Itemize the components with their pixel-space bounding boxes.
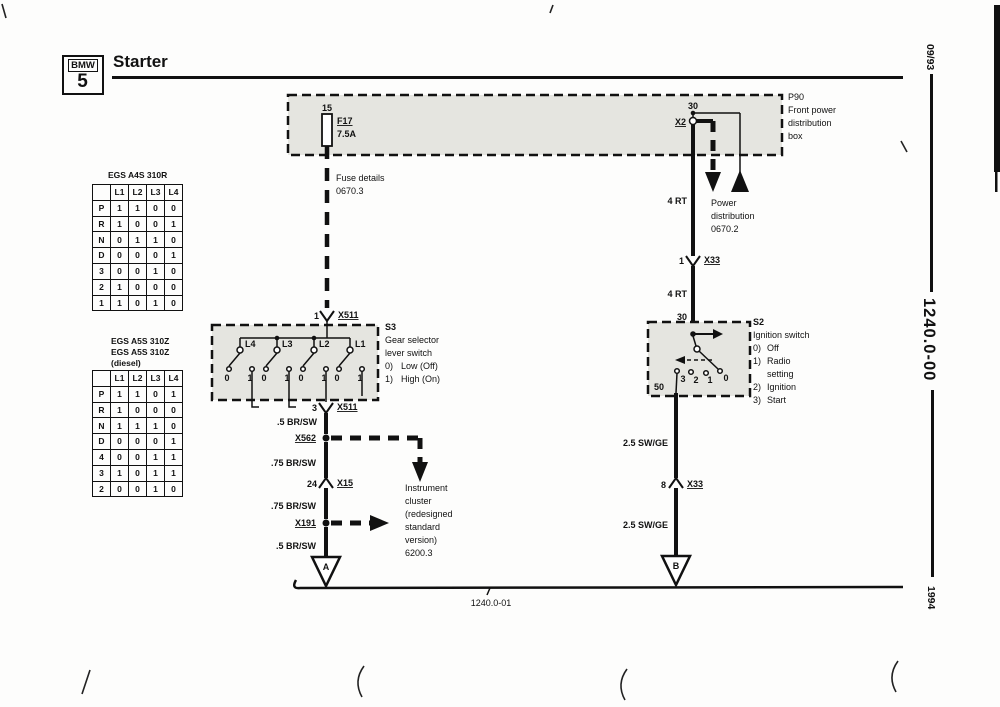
x15-label: X15 (337, 478, 353, 488)
continuation-b-label: B (673, 561, 680, 571)
s3-l1-label: L1 (355, 339, 366, 349)
s3-gear-selector-switch: L4 L3 L2 L1 0 1 0 1 0 1 0 1 S3 Gear sele… (212, 321, 440, 407)
s2-contact-0-label: 0 (723, 373, 728, 383)
footer-line (294, 580, 903, 588)
instrument-branch-dashed (331, 438, 420, 464)
s2-opt2-val: Ignition (767, 382, 796, 392)
p90-desc-line3: distribution (788, 118, 832, 128)
x191-label: X191 (295, 518, 316, 528)
wire-label-05-brsw-upper: .5 BR/SW (277, 417, 318, 427)
instrument-line5: version) (405, 535, 437, 545)
p90-desc-line4: box (788, 131, 803, 141)
fuse-rating-label: 7.5A (337, 129, 357, 139)
wire-label-25-swge-lower: 2.5 SW/GE (623, 520, 668, 530)
instrument-line3: (redesigned (405, 509, 453, 519)
continuation-a-label: A (323, 562, 330, 572)
s2-opt1-val: Radio (767, 356, 791, 366)
fuse-details-line2: 0670.3 (336, 186, 364, 196)
wiring-diagram: 15 F17 7.5A 30 X2 P90 Front power distri… (0, 0, 1000, 707)
s3-opt1-val: High (On) (401, 374, 440, 384)
p90-box (288, 95, 782, 155)
wire-label-4rt-upper: 4 RT (667, 196, 687, 206)
s3-l4-pivot (237, 347, 243, 353)
p90-desc-line2: Front power (788, 105, 836, 115)
s2-opt2-key: 2) (753, 382, 761, 392)
s3-opt0-key: 0) (385, 361, 393, 371)
s2-opt0-key: 0) (753, 343, 761, 353)
x33-lower-label: X33 (687, 479, 703, 489)
x191-branch-arrow-icon (370, 515, 389, 531)
fuse-icon (322, 114, 332, 146)
s2-opt1-val2: setting (767, 369, 794, 379)
svg-text:0: 0 (261, 373, 266, 383)
s3-l2-pivot (311, 347, 317, 353)
s3-l2-label: L2 (319, 339, 330, 349)
x191-junction-dot (323, 520, 330, 527)
fuse-details-line1: Fuse details (336, 173, 385, 183)
wire-label-75-brsw-lower: .75 BR/SW (271, 501, 317, 511)
x33-pin1-label: 1 (679, 256, 684, 266)
right-lower-branch: 2.5 SW/GE 8 X33 2.5 SW/GE B (623, 393, 703, 585)
x2-connector-circle (690, 118, 697, 125)
s2-opt3-val: Start (767, 395, 787, 405)
x15-pin24-label: 24 (307, 479, 317, 489)
x511-top-label: X511 (338, 310, 359, 320)
x33-upper-connector-icon (686, 256, 700, 266)
p90-code: P90 (788, 92, 804, 102)
supply-up-arrow-icon (731, 170, 749, 192)
wire-label-4rt-lower: 4 RT (667, 289, 687, 299)
s3-code: S3 (385, 322, 396, 332)
s3-opt0-val: Low (Off) (401, 361, 438, 371)
s3-bus-dot-2 (312, 336, 317, 341)
left-branch: Fuse details 0670.3 1 X511 (314, 146, 385, 321)
wire-label-05-brsw-lower: .5 BR/SW (276, 541, 317, 551)
s2-opt0-val: Off (767, 343, 779, 353)
s2-opt1-key: 1) (753, 356, 761, 366)
x511-bottom-label: X511 (337, 402, 358, 412)
s3-desc-line2: Gear selector (385, 335, 439, 345)
terminal-15-label: 15 (322, 103, 332, 113)
s3-bus-dot-1 (275, 336, 280, 341)
s3-l4-label: L4 (245, 339, 256, 349)
x33-upper-label: X33 (704, 255, 720, 265)
footer-tick (487, 588, 490, 595)
wire-label-75-brsw-upper: .75 BR/SW (271, 458, 317, 468)
instrument-line6: 6200.3 (405, 548, 433, 558)
power-dist-line1: Power (711, 198, 737, 208)
s2-contact-3-label: 3 (680, 374, 685, 384)
x15-connector-icon (319, 478, 333, 488)
x511-bottom-connector-icon (319, 403, 333, 413)
svg-text:0: 0 (334, 373, 339, 383)
x511-pin1-label: 1 (314, 311, 319, 321)
s2-ignition-switch: 30 3 2 1 0 50 S2 Ignition switch 0) Off … (648, 312, 810, 405)
s3-box (212, 325, 378, 400)
svg-text:0: 0 (224, 373, 229, 383)
instrument-line1: Instrument (405, 483, 448, 493)
instrument-line2: cluster (405, 496, 432, 506)
s2-code: S2 (753, 317, 764, 327)
svg-text:0: 0 (298, 373, 303, 383)
s3-l1-pivot (347, 347, 353, 353)
power-dist-line3: 0670.2 (711, 224, 739, 234)
s3-opt1-key: 1) (385, 374, 393, 384)
s2-desc: Ignition switch (753, 330, 810, 340)
left-lower-branch: 3 X511 .5 BR/SW X562 .75 BR/SW 24 X15 .7… (271, 402, 453, 586)
s3-l3-pivot (274, 347, 280, 353)
s2-terminal-30-label: 30 (677, 312, 687, 322)
s3-l3-label: L3 (282, 339, 293, 349)
x562-label: X562 (295, 433, 316, 443)
fuse-name-label: F17 (337, 116, 353, 126)
power-dist-down-arrow-icon (705, 172, 721, 192)
scanned-page: BMW 5 Starter 09/93 1240.0-00 1994 EGS A… (0, 0, 1000, 707)
x562-junction-dot (323, 435, 330, 442)
terminal-30-label: 30 (688, 101, 698, 111)
s2-opt3-key: 3) (753, 395, 761, 405)
instrument-branch-arrow-icon (412, 462, 428, 482)
s3-desc-line3: lever switch (385, 348, 432, 358)
x33-lower-connector-icon (669, 478, 683, 488)
x511-top-connector-icon (320, 311, 334, 321)
s2-output-stub (676, 373, 677, 393)
footer-reference: 1240.0-01 (294, 580, 903, 608)
instrument-line4: standard (405, 522, 440, 532)
x2-label: X2 (675, 117, 686, 127)
s2-contact-2-label: 2 (693, 375, 698, 385)
wire-label-25-swge-upper: 2.5 SW/GE (623, 438, 668, 448)
s2-contact-1-label: 1 (707, 375, 712, 385)
power-dist-line2: distribution (711, 211, 755, 221)
s2-terminal-50-label: 50 (654, 382, 664, 392)
x33-pin8-label: 8 (661, 480, 666, 490)
footer-ref-label: 1240.0-01 (471, 598, 512, 608)
x511-pin3-label: 3 (312, 403, 317, 413)
